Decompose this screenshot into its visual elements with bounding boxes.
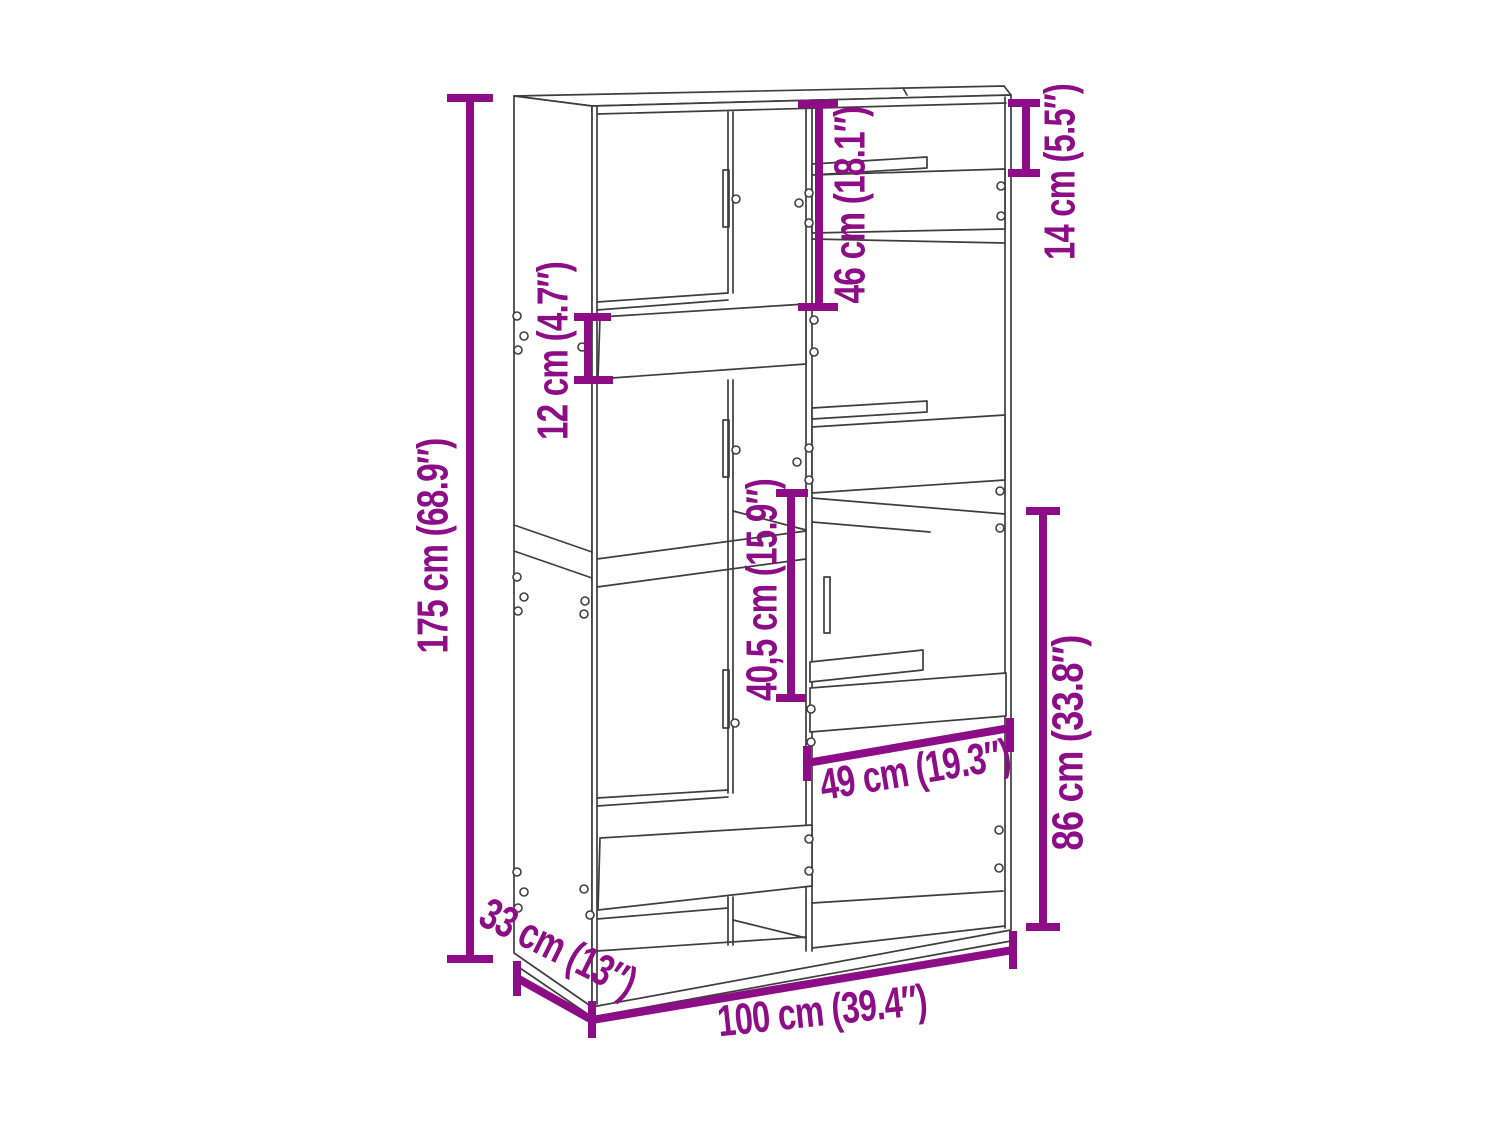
dimension-label: 12 cm (4.7″) — [529, 262, 578, 440]
cabinet-left-side-panel — [514, 96, 592, 1007]
bookcase-dimension-diagram: 175 cm (68.9″) 12 cm (4.7″) 46 cm (18.1″… — [0, 0, 1500, 1125]
shelf-r2-front-apron — [812, 415, 1005, 493]
dimension-label: 175 cm (68.9″) — [409, 439, 458, 654]
dimension-label: 40,5 cm (15.9″) — [738, 479, 787, 701]
diagram-page: 175 cm (68.9″) 12 cm (4.7″) 46 cm (18.1″… — [0, 0, 1500, 1125]
dimension-label: 46 cm (18.1″) — [826, 107, 875, 304]
dimension-label: 86 cm (33.8″) — [1044, 636, 1093, 851]
dimension-label: 14 cm (5.5″) — [1036, 84, 1085, 260]
